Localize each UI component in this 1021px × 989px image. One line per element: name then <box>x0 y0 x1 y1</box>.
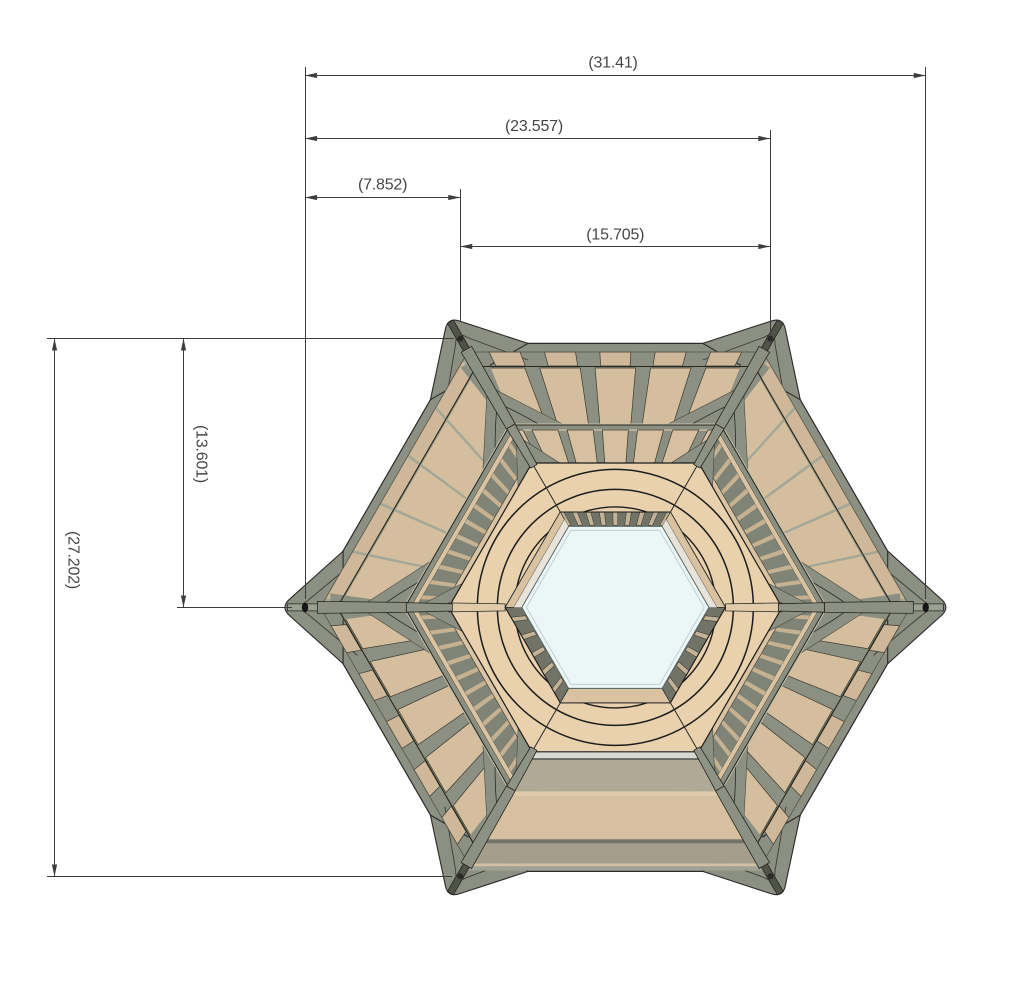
svg-text:(15.705): (15.705) <box>586 227 644 244</box>
svg-text:(31.41): (31.41) <box>588 55 637 72</box>
svg-text:(27.202): (27.202) <box>65 531 82 589</box>
svg-text:(7.852): (7.852) <box>358 177 407 194</box>
svg-text:(13.601): (13.601) <box>193 425 210 483</box>
svg-text:(23.557): (23.557) <box>505 118 563 135</box>
